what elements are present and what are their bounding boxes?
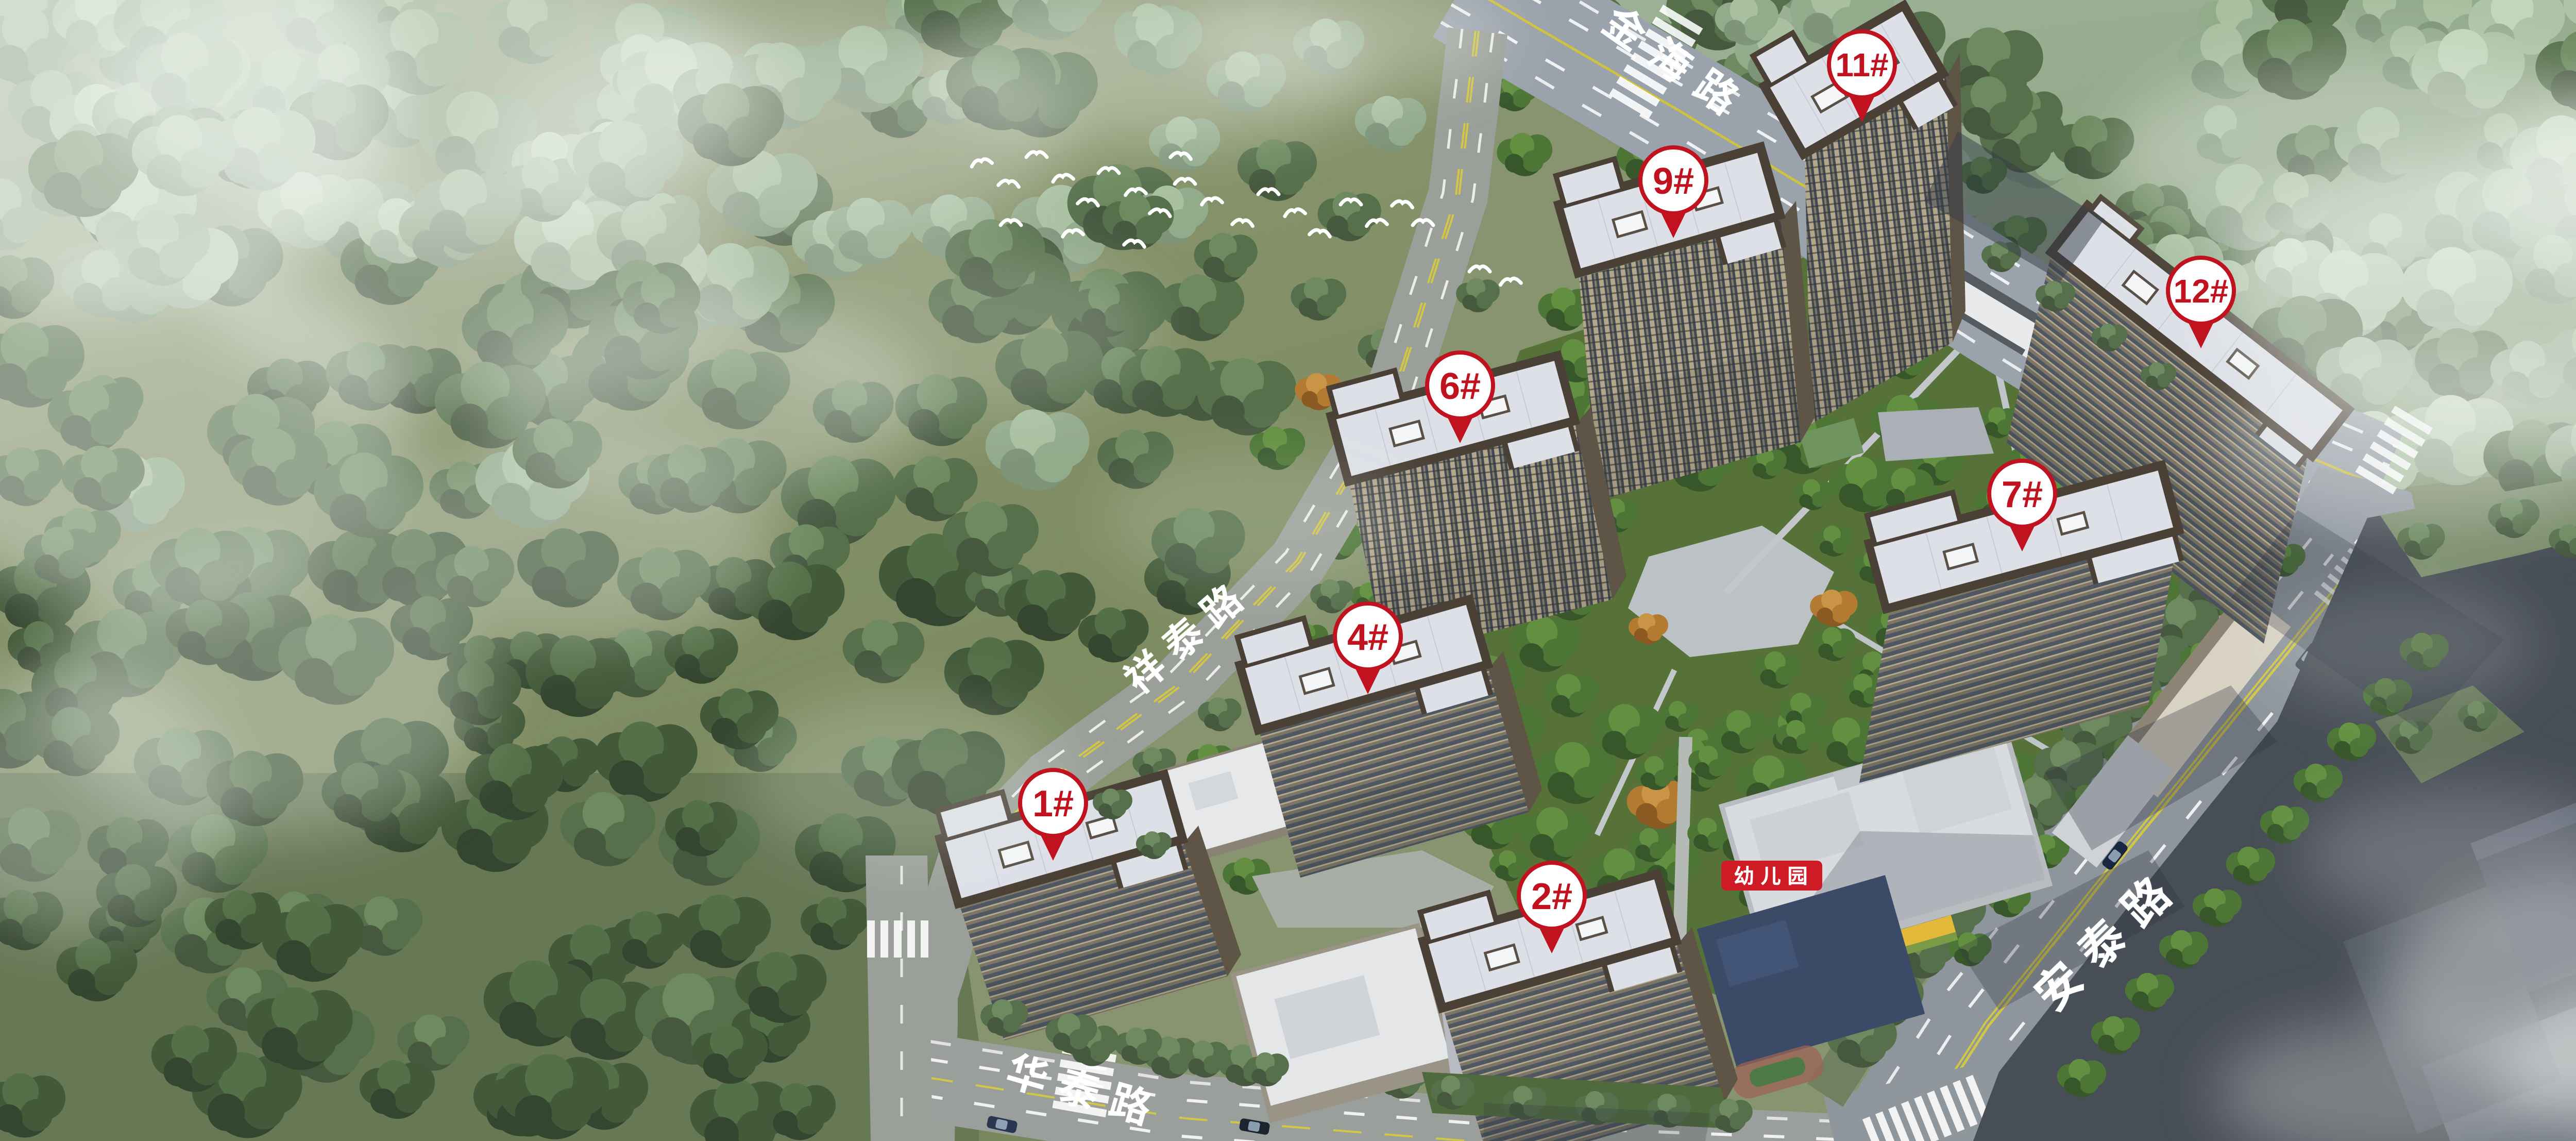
svg-text:12#: 12# [2174, 273, 2229, 310]
svg-text:7#: 7# [2002, 474, 2043, 515]
svg-text:1#: 1# [1032, 783, 1074, 825]
svg-text:2#: 2# [1531, 876, 1572, 917]
svg-text:11#: 11# [1835, 46, 1888, 83]
svg-text:9#: 9# [1653, 161, 1694, 202]
svg-text:4#: 4# [1347, 617, 1388, 658]
svg-text:6#: 6# [1439, 366, 1481, 407]
